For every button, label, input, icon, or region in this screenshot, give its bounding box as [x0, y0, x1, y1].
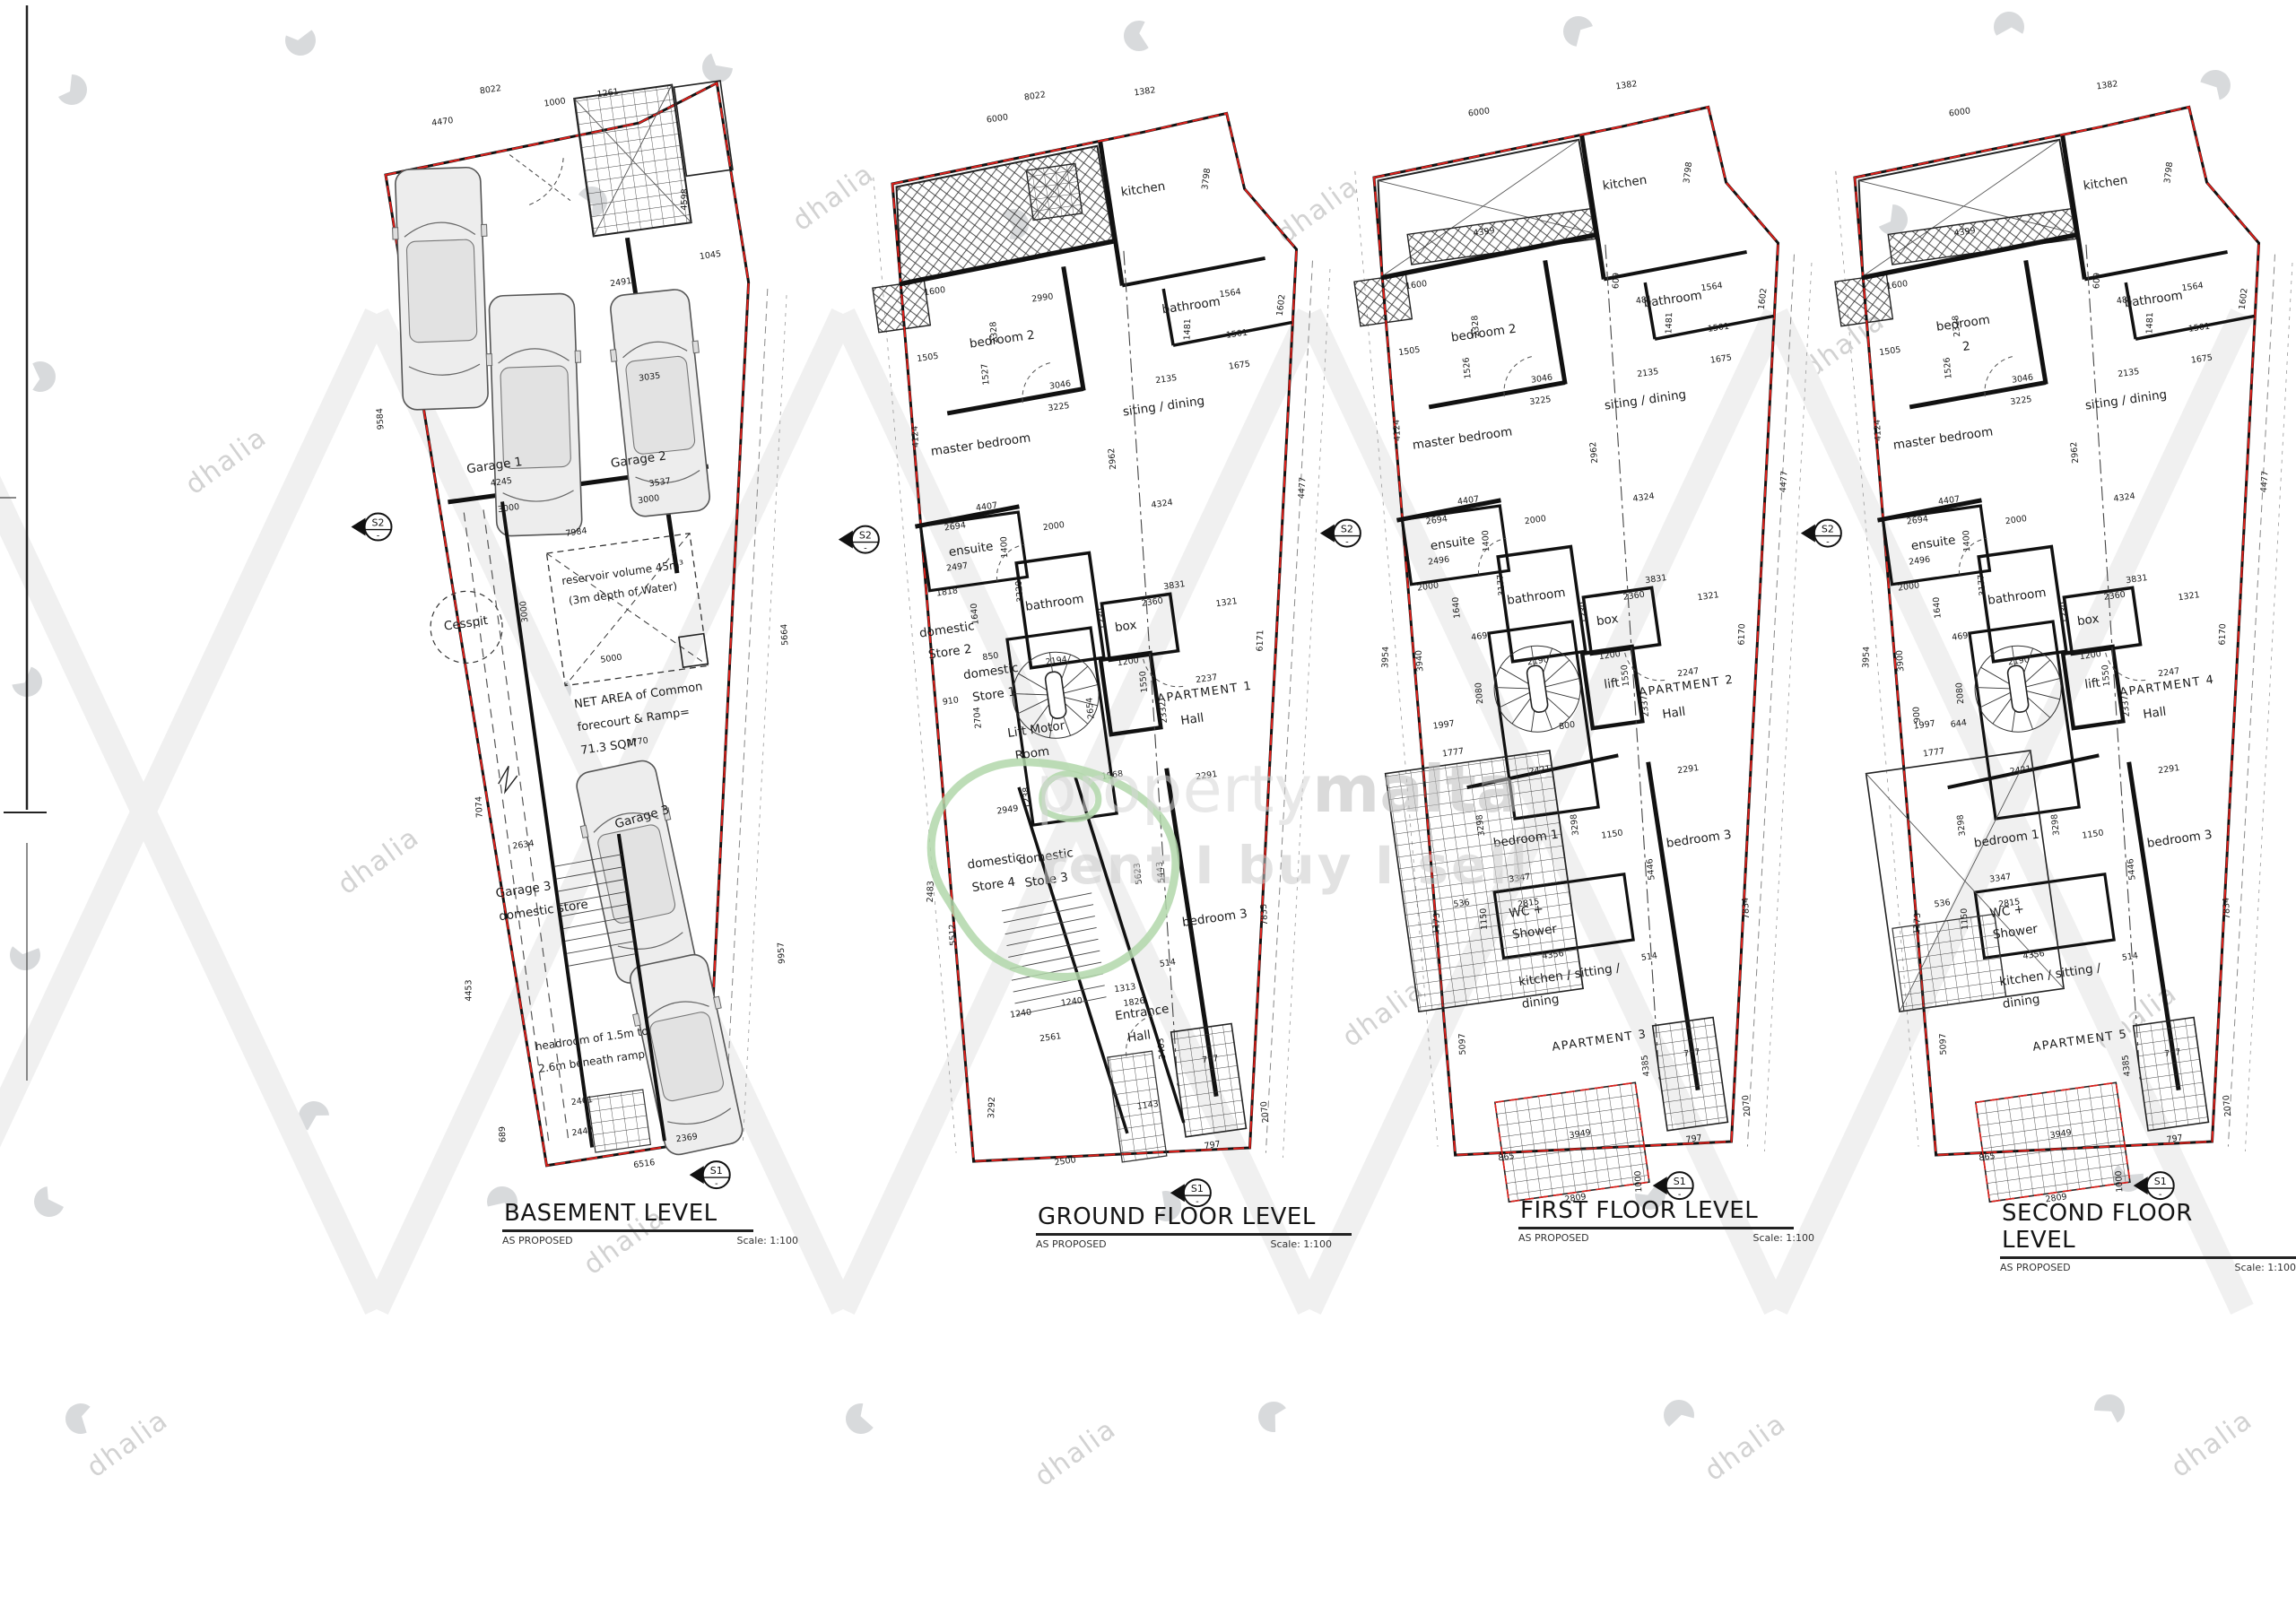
dim-label: 1602 [1757, 288, 1770, 310]
logo-blob-icon [1987, 5, 2029, 47]
logo-blob-icon [280, 20, 322, 62]
room-label: Store 1 [971, 684, 1016, 705]
wall-line [1582, 135, 1605, 280]
wall-line [1121, 258, 1266, 285]
dim-label: 4453 [465, 979, 474, 1001]
plan-scale: Scale: 1:100 [1753, 1232, 1815, 1244]
dim-label: 514 [1159, 958, 1176, 969]
dim-label: 3798 [1682, 161, 1694, 184]
dim-label: 4356 [2022, 949, 2045, 961]
brand-text-group: propertymaltarent I buy I sell [1036, 751, 1530, 896]
wall-line [2063, 135, 2085, 280]
dim-label: 1481 [1664, 312, 1674, 334]
plan-title: GROUND FLOOR LEVEL [1036, 1203, 1352, 1236]
logo-blob-shape [1561, 14, 1594, 48]
dim-label: 1675 [1709, 352, 1732, 365]
titleblock-basement: BASEMENT LEVEL AS PROPOSED Scale: 1:100 [502, 1200, 798, 1246]
dim-label: 1527 [980, 363, 992, 386]
dim-label: 1321 [2178, 590, 2200, 603]
logo-blob-icon [839, 1399, 881, 1440]
dim-label: 2194 [1045, 655, 1067, 667]
logo-blob-shape [30, 1184, 68, 1221]
dhalia-watermark: dhalia [1699, 1408, 1792, 1488]
section-marker-arrow [1801, 525, 1815, 543]
dim-label: 9584 [375, 408, 386, 430]
logo-blob-shape [839, 1399, 881, 1440]
section-marker-sub: - [377, 532, 380, 542]
room-label: domestic store [498, 898, 588, 925]
dim-label: 1550 [1138, 671, 1150, 693]
logo-blob-icon [1257, 1400, 1289, 1434]
plan-subtitle: AS PROPOSED [1036, 1238, 1107, 1250]
room-label: domestic [918, 619, 975, 640]
dim-label: 1230 [1578, 601, 1590, 623]
dim-label: 2070 [1741, 1095, 1752, 1117]
dim-label: 1382 [1134, 85, 1156, 98]
ramp-break [496, 765, 519, 793]
room-label: bathroom [1506, 586, 1566, 608]
section-marker-arrow [690, 1166, 704, 1184]
section-marker-label: S1 [2154, 1176, 2167, 1187]
dim-label: 1238 [1022, 786, 1033, 809]
room-label: box [1596, 612, 1619, 629]
section-marker-arrow [1320, 525, 1335, 543]
dim-label: 2500 [1054, 1155, 1076, 1168]
room-label: Hall [1661, 705, 1686, 722]
logo-blob-icon [30, 1184, 68, 1221]
room-label: bathroom [1024, 592, 1084, 614]
dim-label: 1150 [1479, 908, 1490, 930]
logo-blob-icon [701, 53, 734, 83]
dim-label: 1240 [1009, 1007, 1031, 1020]
dim-label: 1600 [1885, 279, 1908, 291]
wall-line [2083, 252, 2229, 279]
dim-label: 2634 [512, 838, 535, 851]
dim-label: 2080 [1474, 682, 1485, 705]
dim-label: 1602 [1275, 294, 1288, 317]
dim-label: 2496 [1427, 554, 1449, 567]
dim-label: 3000 [518, 601, 530, 623]
logo-blob-shape [280, 20, 322, 62]
section-marker: S2- [352, 514, 392, 542]
dim-label: 1602 [2238, 288, 2250, 310]
dim-label: 3225 [1048, 401, 1070, 413]
dim-label: 5000 [600, 653, 622, 665]
logo-blob-shape [1118, 15, 1159, 57]
dim-label: 2483 [926, 881, 936, 903]
dim-label: 2694 [944, 520, 966, 533]
room-label: kitchen [2083, 173, 2128, 194]
dim-label: 5097 [1457, 1033, 1468, 1055]
dim-label: 2694 [1906, 514, 1928, 526]
dim-label: 1000 [544, 96, 566, 109]
dim-label: 1045 [699, 249, 721, 262]
plan-scale: Scale: 1:100 [737, 1235, 799, 1246]
dim-label: 2704 [972, 707, 984, 729]
dim-label: 1640 [1451, 596, 1463, 619]
dim-label: 3298 [2049, 813, 2061, 836]
titleblock-first: FIRST FLOOR LEVEL AS PROPOSED Scale: 1:1… [1518, 1197, 1814, 1244]
logo-blob-icon [2093, 1394, 2126, 1424]
logo-blob-shape [1987, 5, 2029, 47]
dim-label: 689 [498, 1126, 509, 1143]
dim-label: 1777 [1922, 746, 1944, 759]
logo-blob-icon [1561, 14, 1594, 48]
dim-label: 469 [1471, 630, 1488, 642]
room-label: Hall [1126, 1028, 1152, 1045]
room-label: Garage 3 [495, 879, 552, 901]
room-label: ensuite [1430, 533, 1476, 553]
dim-label: 3831 [2126, 573, 2148, 586]
dim-label: 2337 [1639, 695, 1651, 717]
section-marker-sub: - [864, 544, 867, 554]
plan-second: kitchenbathroombedroom2siting / diningma… [1743, 58, 2296, 1238]
wall-line [1163, 289, 1173, 346]
plan-subtitle: AS PROPOSED [2000, 1262, 2071, 1273]
room-label: bedroom 3 [1181, 907, 1248, 930]
dim-label: 2949 [996, 803, 1019, 816]
dim-label: 4477 [1297, 477, 1309, 499]
room-label: bathroom [1161, 294, 1222, 317]
logo-blob-icon [5, 936, 46, 976]
dim-label: 2000 [1524, 514, 1546, 526]
dim-label: 1501 [1225, 328, 1248, 341]
dim-label: 2328 [988, 321, 1000, 343]
room-label: master bedroom [1412, 424, 1513, 452]
dim-label: 2654 [1085, 697, 1097, 719]
dim-label: 1150 [2082, 829, 2104, 841]
dim-label: 3220 [1014, 580, 1026, 603]
dim-label: 1173 [1912, 913, 1923, 935]
dim-label: 4124 [910, 426, 921, 448]
dim-label: 3225 [2010, 395, 2032, 407]
plan-first: kitchenbathroombedroom 2siting / diningm… [1262, 58, 1939, 1238]
dim-label: 5446 [1645, 858, 1657, 881]
room-label: master bedroom [930, 430, 1031, 458]
dim-label: 8022 [479, 83, 501, 96]
balcony-grid [1976, 1082, 2130, 1202]
wall-line [2026, 260, 2046, 385]
planter-hatch [1407, 209, 1596, 265]
dim-label: 2962 [2069, 441, 2081, 464]
section-marker: S1- [690, 1161, 730, 1189]
car-mirror [482, 224, 487, 236]
dim-label: 1481 [2144, 312, 2155, 334]
room-label: box [2076, 612, 2100, 629]
dim-label: 4124 [1392, 420, 1403, 442]
dim-label: 4124 [1873, 420, 1883, 442]
dim-label: 609 [1611, 273, 1622, 290]
dim-label: 1240 [1060, 995, 1083, 1008]
dim-label: 2962 [1588, 441, 1600, 464]
dim-label: 7074 [474, 796, 485, 819]
dim-label: 3954 [1380, 647, 1391, 669]
dim-label: 1230 [2059, 601, 2071, 623]
dim-label: 1818 [935, 586, 958, 598]
dim-label: 2332 [1158, 701, 1170, 724]
dim-label: 7834 [1741, 898, 1752, 920]
room-label: Hall [2142, 705, 2167, 722]
small-stair-grid [1892, 914, 2006, 1011]
dim-label: 2237 [1196, 673, 1218, 685]
plan-title: SECOND FLOOR LEVEL [2000, 1200, 2296, 1259]
logo-blob-shape [1257, 1400, 1289, 1434]
car-mirror [393, 228, 398, 239]
dim-label: 1150 [1960, 908, 1970, 930]
dim-label: 2291 [1677, 763, 1700, 776]
section-marker-label: S1 [1191, 1183, 1204, 1194]
dim-label: 3954 [1861, 647, 1872, 669]
dim-label: 1230 [1097, 607, 1109, 630]
dhalia-watermark: dhalia [2165, 1404, 2258, 1484]
car-roof [406, 239, 477, 343]
dim-label: 1526 [1943, 357, 1954, 379]
room-label: siting / dining [1122, 394, 1205, 420]
car-roof [625, 355, 696, 455]
dhalia-watermark: dhalia [787, 158, 880, 238]
dim-label: 2360 [2103, 590, 2126, 603]
terrace-grid [1653, 1018, 1728, 1131]
stair-newel [2007, 664, 2030, 713]
dim-label: 6170 [1737, 623, 1748, 646]
room-label: forecourt & Ramp= [577, 706, 691, 734]
dim-label: 1321 [1697, 590, 1719, 603]
room-label: siting / dining [1604, 387, 1687, 413]
dim-label: 3798 [2162, 161, 2175, 184]
car [390, 167, 492, 411]
logo-blob-icon [1118, 15, 1159, 57]
dim-label: 3292 [987, 1097, 997, 1119]
dim-label: 2247 [1677, 666, 1700, 679]
dim-label: 1382 [2096, 79, 2118, 91]
dim-label: 3298 [1569, 813, 1580, 836]
floorplan-sheet: dhaliadhaliadhaliadhaliadhaliadhaliadhal… [0, 0, 2296, 1624]
dim-label: 609 [2092, 273, 2102, 290]
dim-label: 5097 [1938, 1033, 1949, 1055]
dim-label: 2990 [1031, 291, 1054, 304]
dim-label: 2135 [1155, 373, 1178, 386]
titleblock-second: SECOND FLOOR LEVEL AS PROPOSED Scale: 1:… [2000, 1200, 2296, 1273]
dim-label: 2135 [2118, 367, 2140, 379]
bottom-steps [587, 1090, 650, 1152]
room-label: APARTMENT 3 [1552, 1028, 1648, 1055]
section-marker-sub: - [1345, 538, 1349, 548]
room-label: 2.6m beneath ramp [537, 1047, 645, 1075]
car [484, 293, 587, 537]
logo-blob-icon [1879, 204, 1909, 236]
dim-label: 1481 [1182, 318, 1193, 341]
room-label: kitchen [1120, 179, 1166, 200]
dim-label: 910 [942, 695, 959, 707]
car-mirror [486, 354, 491, 366]
section-marker: S2- [1320, 520, 1361, 548]
wall-line [1645, 282, 1655, 340]
dim-label: 3900 [1894, 649, 1906, 672]
floorplan-canvas: dhaliadhaliadhaliadhaliadhaliadhaliadhal… [0, 0, 2296, 1624]
logo-blob-shape [2093, 1394, 2126, 1424]
dhalia-watermark: dhalia [179, 421, 273, 501]
dim-label: 469 [1952, 630, 1969, 642]
planter-hatch [1888, 209, 2076, 265]
room-label: Shower [1992, 922, 2039, 942]
logo-blob-icon [1657, 1394, 1699, 1436]
dim-label: 2328 [1951, 315, 1962, 337]
dim-label: 2000 [1042, 520, 1065, 533]
dim-label: 4598 [680, 188, 691, 211]
dhalia-watermark: dhalia [81, 1404, 174, 1484]
section-marker-arrow [352, 518, 366, 536]
section-marker-sub: - [2159, 1190, 2162, 1200]
dim-label: 1000 [1633, 1170, 1644, 1193]
logo-blob-shape [5, 936, 46, 976]
dim-label: 2496 [1908, 554, 1930, 567]
dim-label: 2080 [1954, 682, 1966, 705]
room-label: domestic [967, 850, 1023, 872]
dim-label: 3298 [1955, 814, 1967, 837]
logo-blob-icon [2197, 67, 2233, 101]
dhalia-watermark: dhalia [332, 821, 425, 901]
dim-label: 4324 [1151, 498, 1173, 510]
car-mirror [611, 350, 617, 362]
dim-label: 1000 [2114, 1170, 2125, 1193]
dim-label: 2328 [1470, 315, 1482, 337]
dim-label: 536 [1934, 898, 1951, 909]
dim-label: 1564 [1700, 281, 1723, 293]
logo-blob-shape [1657, 1394, 1699, 1436]
dim-label: 2000 [2005, 514, 2027, 526]
room-label: bedroom 3 [1665, 828, 1733, 851]
room-label: bedroom 2 [969, 328, 1036, 352]
room-label: bedroom 2 [1450, 322, 1518, 345]
plan-subtitle: AS PROPOSED [502, 1235, 573, 1246]
dim-label: 1200 [2079, 649, 2101, 662]
room-label: box [1114, 618, 1137, 635]
dim-label: 1501 [1707, 322, 1729, 334]
car-mirror [692, 341, 699, 353]
brand-watermark: propertymalta [1036, 751, 1520, 827]
plan-title: FIRST FLOOR LEVEL [1518, 1197, 1794, 1229]
dim-label: 6000 [1467, 106, 1490, 118]
dim-label: 4477 [2259, 471, 2271, 493]
dim-label: 1564 [2181, 281, 2204, 293]
room-label: siting / dining [2084, 387, 2168, 413]
plan-subtitle: AS PROPOSED [1518, 1232, 1589, 1244]
dim-label: 5446 [2126, 858, 2137, 881]
logo-blob-shape [58, 74, 87, 105]
section-marker-arrow [839, 531, 853, 549]
section-marker-label: S2 [372, 517, 385, 529]
dim-label: 5512 [948, 924, 959, 946]
dim-label: 1400 [999, 536, 1010, 559]
section-marker-label: S2 [859, 530, 872, 542]
dim-label: 8022 [1023, 90, 1046, 102]
dim-label: 6171 [1256, 630, 1266, 652]
logo-blob-shape [1879, 204, 1909, 236]
room-label: bathroom [1987, 586, 2047, 608]
dim-label: 1321 [1215, 596, 1238, 609]
section-marker-sub: - [1826, 538, 1830, 548]
dim-label: 9957 [776, 942, 787, 964]
dim-label: 6516 [633, 1158, 656, 1170]
room-label: lift [2083, 675, 2100, 691]
dim-label: 4324 [1632, 491, 1655, 504]
dim-label: 4477 [1779, 471, 1790, 493]
dim-label: 1564 [1219, 287, 1241, 300]
dim-label: 7833 [1259, 904, 1270, 926]
dim-label: 2291 [2158, 763, 2180, 776]
dim-label: 3831 [1645, 573, 1667, 586]
dim-label: 4470 [431, 116, 454, 128]
titleblock-ground: GROUND FLOOR LEVEL AS PROPOSED Scale: 1:… [1036, 1203, 1352, 1250]
section-marker: S2- [1801, 520, 1841, 548]
dim-label: 1400 [1961, 530, 1972, 552]
dim-label: 3177 [1977, 574, 1988, 596]
logo-blob-shape [701, 53, 734, 83]
door-arc [523, 158, 570, 205]
void-outline [1848, 139, 2077, 275]
dim-label: 1173 [1431, 913, 1442, 935]
room-label: Cesspit [443, 613, 489, 634]
dim-label: 1505 [1398, 345, 1421, 358]
dim-label: 2070 [2222, 1095, 2233, 1117]
room-label: Store 2 [927, 642, 972, 663]
dim-label: 1505 [1879, 345, 1901, 358]
section-marker: S2- [839, 526, 879, 554]
plan-title: BASEMENT LEVEL [502, 1200, 753, 1232]
dim-label: 2337 [2120, 695, 2132, 717]
room-label: Hall [1179, 711, 1205, 728]
plan-ground: kitchenbathroombedroom 2siting / diningm… [778, 54, 1457, 1246]
plan-scale: Scale: 1:100 [1271, 1238, 1333, 1250]
dim-label: 3940 [1413, 649, 1425, 672]
dim-label: 514 [2121, 951, 2138, 963]
wall-line [1064, 266, 1083, 391]
car-roof [500, 366, 571, 469]
room-label: master bedroom [1892, 424, 1994, 452]
dim-label: 3347 [1989, 872, 2012, 884]
room-label: ensuite [1910, 533, 1957, 553]
room-label: kitchen [1602, 173, 1648, 194]
section-marker-label: S1 [710, 1165, 723, 1177]
logo-blob-shape [2197, 67, 2233, 101]
dim-label: 5664 [779, 623, 790, 646]
logo-blob-icon [58, 74, 87, 105]
dim-label: 2694 [1425, 514, 1448, 526]
dim-label: 6000 [1948, 106, 1970, 118]
void-outline [1368, 139, 1596, 275]
room-label: 2 [1961, 339, 1971, 354]
dim-label: 1550 [1620, 664, 1631, 687]
dim-label: 2962 [1107, 447, 1118, 470]
dim-label: 2247 [2158, 666, 2180, 679]
logo-blob-icon [61, 1399, 100, 1438]
dim-label: 6170 [2218, 623, 2229, 646]
dim-label: 1505 [917, 352, 939, 364]
brand-tagline-watermark: rent I buy I sell [1040, 835, 1530, 896]
room-label: Store 4 [971, 875, 1016, 896]
dim-label: 6000 [986, 112, 1008, 125]
wall-line [1603, 252, 1748, 279]
watermark-layer: dhaliadhaliadhaliadhaliadhaliadhaliadhal… [0, 5, 2259, 1493]
dim-label: 900 [1911, 707, 1923, 724]
section-marker-label: S1 [1674, 1176, 1686, 1187]
room-label: bedroom [1935, 313, 1991, 334]
dim-label: 2491 [610, 276, 632, 289]
dim-label: 1600 [923, 285, 945, 298]
section-marker-label: S2 [1341, 524, 1353, 535]
dim-label: 1640 [1932, 596, 1944, 619]
dim-label: 1550 [2100, 664, 2112, 687]
